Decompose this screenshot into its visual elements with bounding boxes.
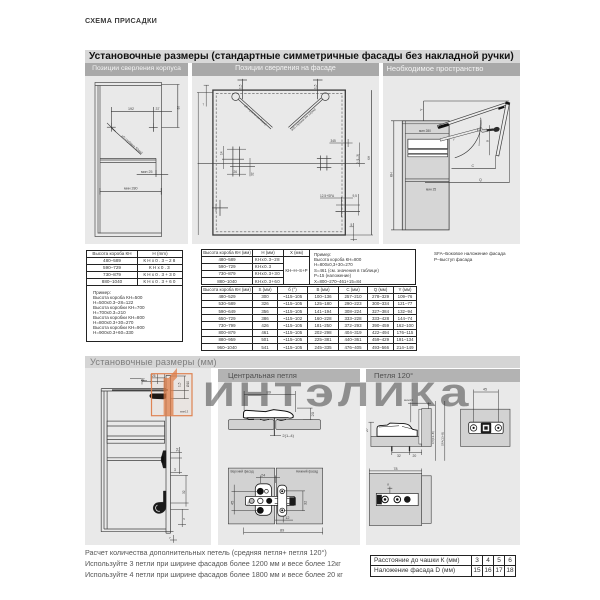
svg-text:ø35 глубина мм 13(мм): ø35 глубина мм 13(мм) bbox=[290, 107, 317, 132]
svg-text:32: 32 bbox=[251, 172, 255, 176]
svg-text:Нижний фасад: Нижний фасад bbox=[296, 470, 318, 474]
svg-text:12: 12 bbox=[173, 468, 177, 472]
svg-text:1,5: 1,5 bbox=[238, 84, 242, 89]
svg-text:2(1–4): 2(1–4) bbox=[282, 433, 294, 438]
svg-text:45: 45 bbox=[483, 388, 487, 392]
svg-text:7: 7 bbox=[169, 536, 171, 540]
svg-text:1,5: 1,5 bbox=[313, 84, 317, 89]
svg-text:ø5 глубина 5(мм): ø5 глубина 5(мм) bbox=[120, 134, 143, 155]
svg-text:мин 280: мин 280 bbox=[124, 186, 137, 190]
svg-text:45: 45 bbox=[230, 501, 234, 505]
svg-text:Ø4: Ø4 bbox=[247, 501, 251, 505]
svg-text:95: 95 bbox=[176, 106, 180, 110]
svg-text:ø5 глубина мм 5(мм): ø5 глубина мм 5(мм) bbox=[243, 103, 267, 125]
svg-text:89: 89 bbox=[280, 529, 284, 533]
svg-text:37: 37 bbox=[156, 107, 160, 111]
svg-text:27: 27 bbox=[366, 428, 369, 432]
svg-text:Q: Q bbox=[479, 178, 482, 182]
svg-text:в: в bbox=[485, 140, 489, 142]
svg-text:32: 32 bbox=[397, 454, 401, 458]
svg-text:5: 5 bbox=[351, 222, 353, 226]
svg-text:2 (1–3): 2 (1–3) bbox=[356, 153, 360, 163]
svg-text:КН: КН bbox=[389, 171, 393, 176]
svg-text:12: 12 bbox=[285, 516, 289, 520]
svg-text:32: 32 bbox=[182, 490, 186, 494]
svg-text:9,5(13–В): 9,5(13–В) bbox=[431, 431, 435, 444]
svg-text:Y: Y bbox=[419, 108, 423, 111]
svg-text:20: 20 bbox=[413, 454, 417, 458]
svg-text:26: 26 bbox=[234, 170, 238, 174]
svg-text:мин 280: мин 280 bbox=[419, 129, 431, 133]
svg-text:С: С bbox=[471, 164, 474, 168]
svg-text:КН: КН bbox=[367, 155, 371, 160]
svg-text:мин 25: мин 25 bbox=[426, 187, 436, 191]
svg-text:7: 7 bbox=[203, 102, 205, 106]
svg-text:192: 192 bbox=[128, 107, 134, 111]
svg-text:345: 345 bbox=[331, 138, 337, 142]
svg-text:32: 32 bbox=[141, 378, 145, 382]
svg-text:24: 24 bbox=[176, 448, 180, 452]
svg-text:9,5: 9,5 bbox=[353, 193, 358, 197]
svg-text:12.5+SFA: 12.5+SFA bbox=[320, 193, 335, 197]
svg-text:SFA(13–В): SFA(13–В) bbox=[441, 432, 445, 446]
svg-text:14: 14 bbox=[220, 151, 224, 155]
svg-text:мин 25: мин 25 bbox=[141, 169, 152, 173]
svg-text:32: 32 bbox=[303, 501, 307, 505]
svg-text:24: 24 bbox=[261, 474, 265, 478]
svg-text:78: 78 bbox=[394, 467, 398, 471]
svg-text:5: 5 bbox=[183, 517, 185, 521]
svg-text:Верхний фасад: Верхний фасад bbox=[231, 470, 254, 474]
